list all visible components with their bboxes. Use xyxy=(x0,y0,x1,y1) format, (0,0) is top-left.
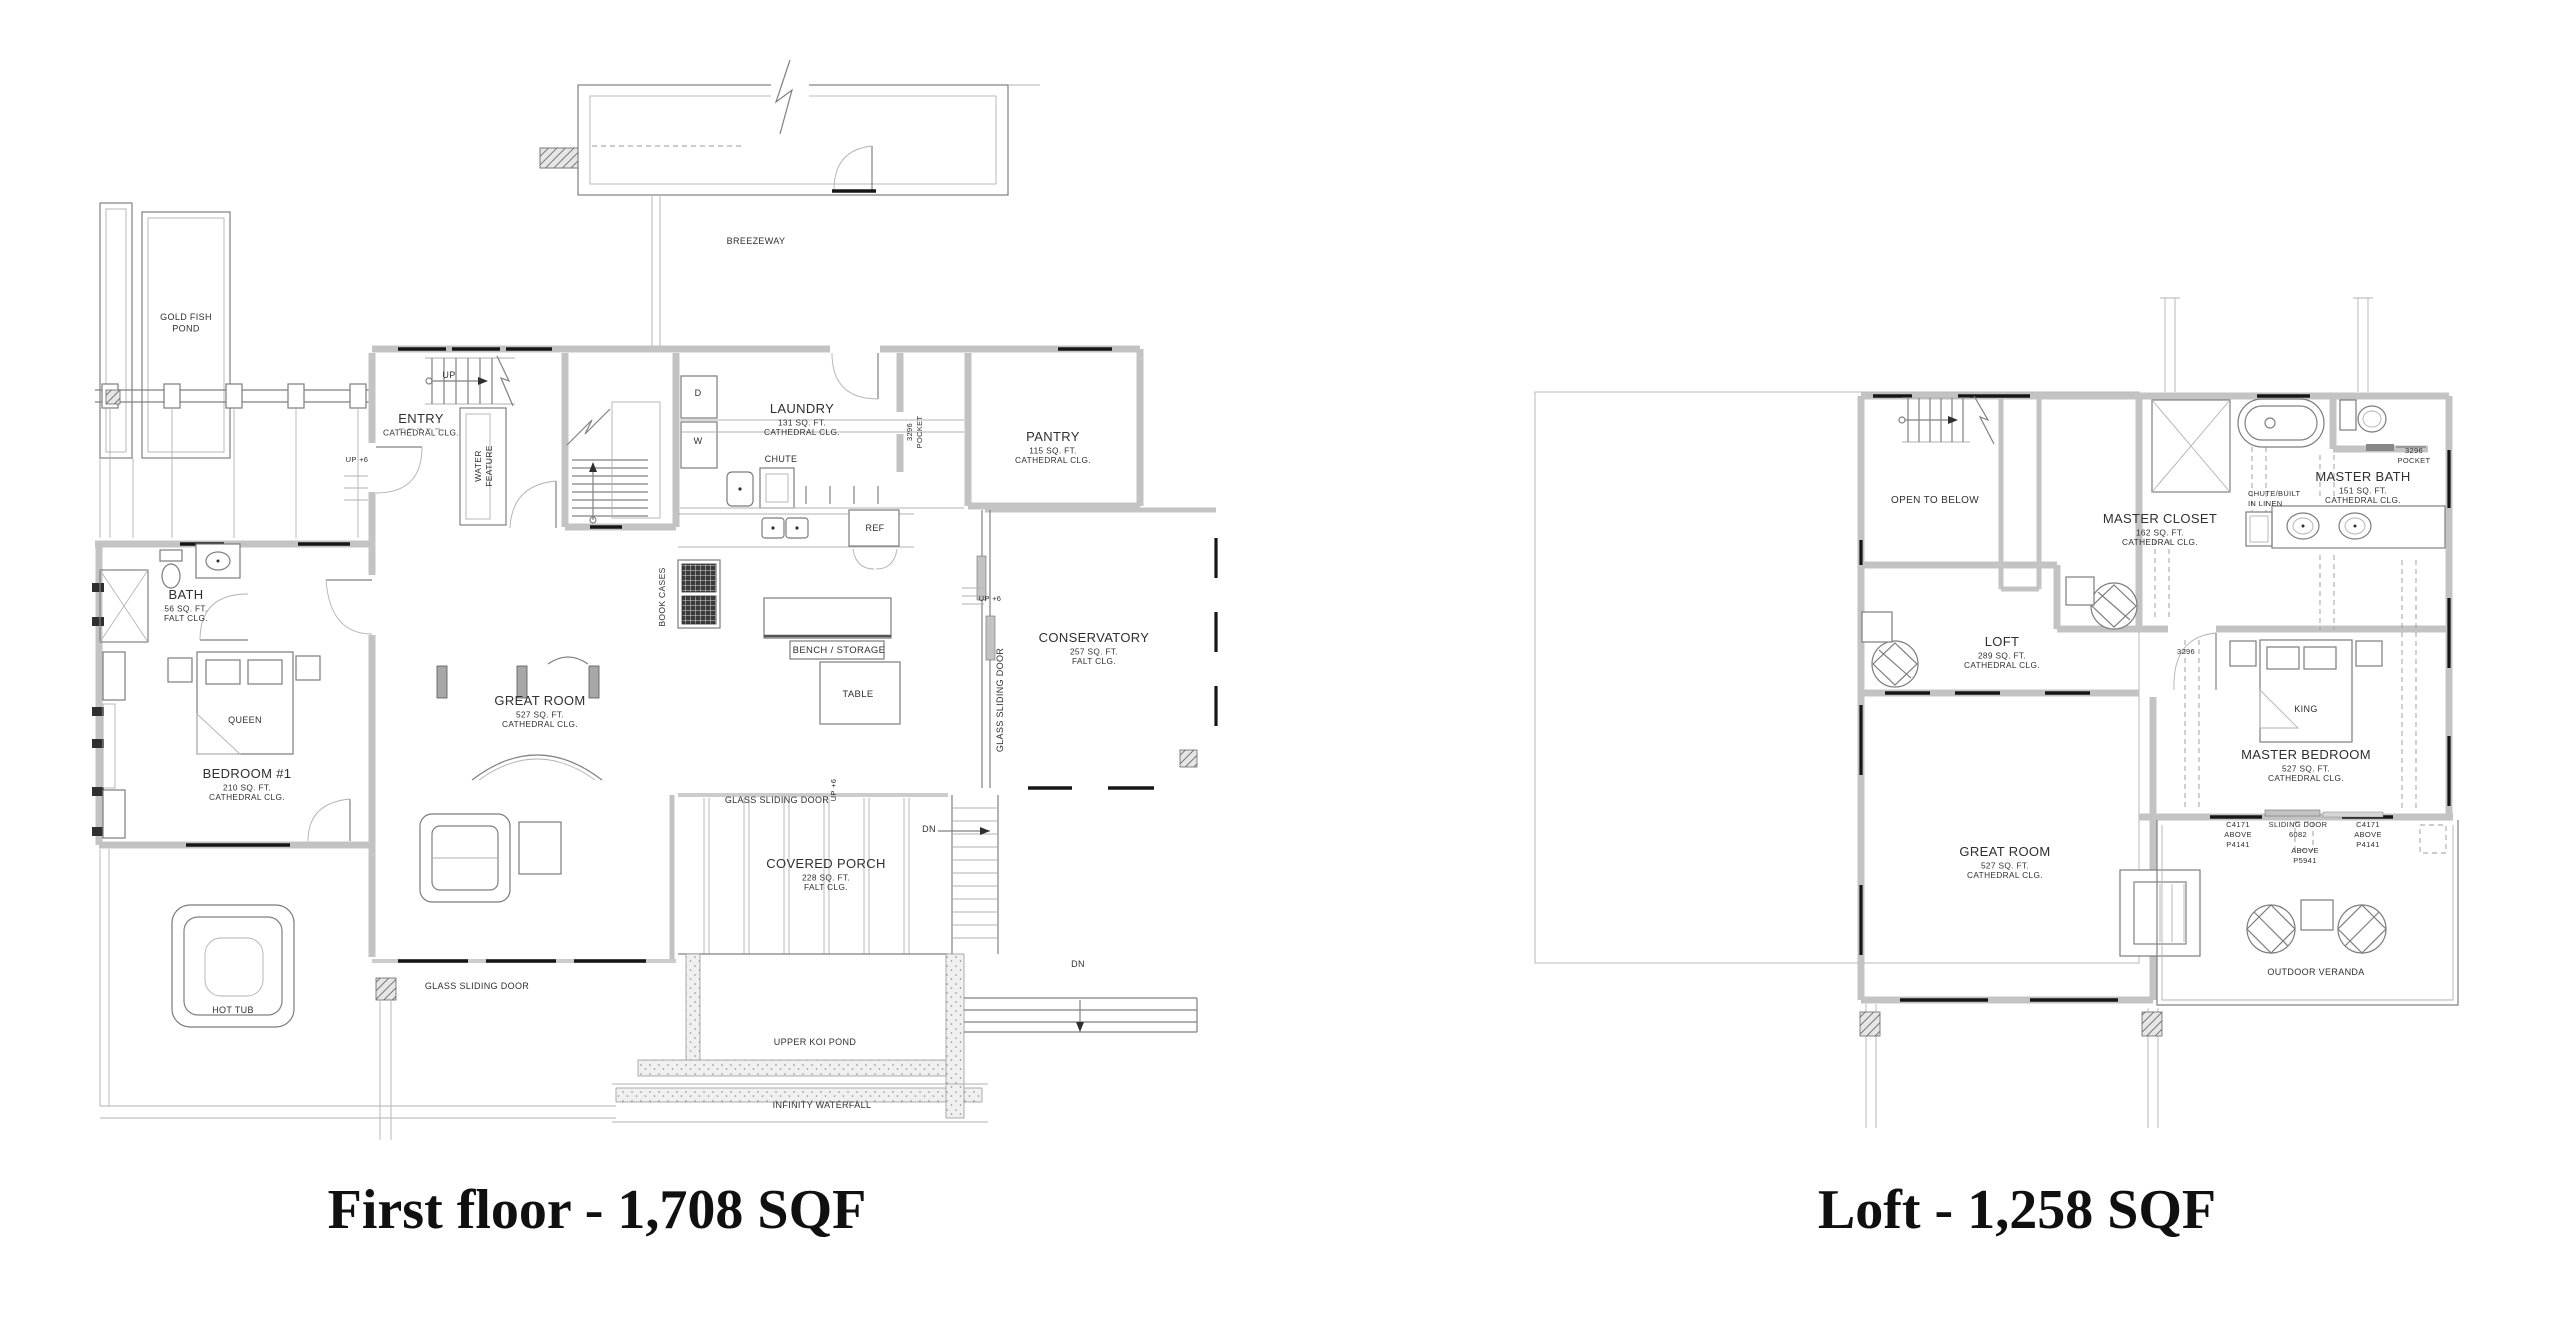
plan-label: MASTER BATH151 SQ. FT.CATHEDRAL CLG. xyxy=(2315,469,2410,505)
nightstand xyxy=(2356,641,2382,666)
water-feature xyxy=(460,408,506,525)
loft-title: Loft - 1,258 SQF xyxy=(1818,1178,2216,1242)
plan-label: HOT TUB xyxy=(212,1005,254,1015)
floor-plan-page: ENTRYCATHEDRAL CLG.LAUNDRY131 SQ. FT.CAT… xyxy=(0,0,2560,1320)
plan-label: REF xyxy=(865,523,884,533)
plan-label: GLASS SLIDING DOOR xyxy=(425,981,529,991)
breezeway-structure xyxy=(540,60,1040,346)
plan-label: GREAT ROOM527 SQ. FT.CATHEDRAL CLG. xyxy=(494,693,585,729)
plan-label: GOLD FISHPOND xyxy=(160,312,212,334)
plan-label: D xyxy=(695,388,702,398)
column-lines xyxy=(1866,1004,2158,1128)
veranda-table xyxy=(2301,900,2333,930)
plan-label: W xyxy=(694,436,703,446)
plan-label: INFINITY WATERFALL xyxy=(773,1100,872,1110)
plan-label: C4171ABOVEP4141 xyxy=(2224,820,2252,849)
plan-label: CONSERVATORY257 SQ. FT.FALT CLG. xyxy=(1039,630,1150,666)
loft-stairs xyxy=(1899,396,1994,444)
plan-label: CHUTE xyxy=(765,454,798,464)
nightstand xyxy=(2230,641,2256,666)
plan-label: GLASS SLIDING DOOR xyxy=(725,795,829,805)
plan-label: UP xyxy=(442,370,455,380)
plan-label: MASTER CLOSET162 SQ. FT.CATHEDRAL CLG. xyxy=(2103,511,2217,547)
plan-label: UP +6 xyxy=(346,455,369,464)
built-in-cabinet xyxy=(103,652,125,700)
plan-label: 3296 xyxy=(2177,647,2195,656)
first-floor-plan: ENTRYCATHEDRAL CLG.LAUNDRY131 SQ. FT.CAT… xyxy=(92,60,1216,1140)
plan-label: MASTER BEDROOM527 SQ. FT.CATHEDRAL CLG. xyxy=(2241,747,2371,783)
plan-label: BREEZEWAY xyxy=(727,236,786,246)
plan-label: OPEN TO BELOW xyxy=(1891,495,1979,506)
plan-label: QUEEN xyxy=(228,715,262,725)
plan-label: WATERFEATURE xyxy=(473,445,494,487)
plan-label: DN xyxy=(1071,959,1085,969)
plan-label: BENCH / STORAGE xyxy=(793,645,886,656)
plan-label: LOFT289 SQ. FT.CATHEDRAL CLG. xyxy=(1964,634,2040,670)
plan-label: BOOK CASES xyxy=(657,567,667,626)
plan-label: OUTDOOR VERANDA xyxy=(2267,967,2364,977)
plan-label: UPPER KOI POND xyxy=(774,1037,857,1047)
plan-label: GLASS SLIDING DOOR xyxy=(995,648,1005,752)
plan-label: ABOVEP5941 xyxy=(2291,846,2319,865)
loft-plan: LOFT289 SQ. FT.CATHEDRAL CLG.MASTER CLOS… xyxy=(1535,298,2458,1128)
plan-label: BEDROOM #1210 SQ. FT.CATHEDRAL CLG. xyxy=(203,766,292,802)
built-in-cabinet xyxy=(103,790,125,838)
first-floor-title: First floor - 1,708 SQF xyxy=(328,1178,867,1242)
toilet xyxy=(2358,406,2386,432)
plan-label: UP +6 xyxy=(979,594,1002,603)
kitchen-island xyxy=(764,598,891,638)
plan-label: TABLE xyxy=(842,689,873,700)
coffee-table xyxy=(519,822,561,874)
side-table xyxy=(2066,577,2094,605)
plan-label: PANTRY115 SQ. FT.CATHEDRAL CLG. xyxy=(1015,429,1091,465)
window-seat xyxy=(103,704,115,788)
loft-furniture xyxy=(1862,577,2200,956)
master-bedroom-furniture xyxy=(2230,640,2382,742)
plan-label: DN xyxy=(922,824,936,834)
toilet xyxy=(162,564,180,588)
plan-label: UP +6 xyxy=(829,779,838,802)
nightstand xyxy=(168,658,192,682)
plan-label: KING xyxy=(2294,704,2317,714)
first-floor-footprint-outline xyxy=(1535,392,2139,963)
chimney-lines xyxy=(2160,298,2373,392)
plan-label: ENTRYCATHEDRAL CLG. xyxy=(383,411,459,438)
floor-plan-drawing: ENTRYCATHEDRAL CLG.LAUNDRY131 SQ. FT.CAT… xyxy=(0,0,2560,1320)
porch-deck-water-features xyxy=(100,750,1197,1140)
plan-label: LAUNDRY131 SQ. FT.CATHEDRAL CLG. xyxy=(764,401,840,437)
gold-fish-pond-structure xyxy=(95,203,372,538)
plan-label: C4171ABOVEP4141 xyxy=(2354,820,2382,849)
nightstand xyxy=(296,656,320,680)
plan-label: GREAT ROOM527 SQ. FT.CATHEDRAL CLG. xyxy=(1959,844,2050,880)
plan-label: BATH56 SQ. FT.FALT CLG. xyxy=(164,587,208,623)
plan-label: CHUTE/BUILTIN LINEN xyxy=(2248,489,2301,508)
plan-label: SLIDING DOOR6082 xyxy=(2269,820,2328,839)
side-table xyxy=(1862,612,1892,642)
